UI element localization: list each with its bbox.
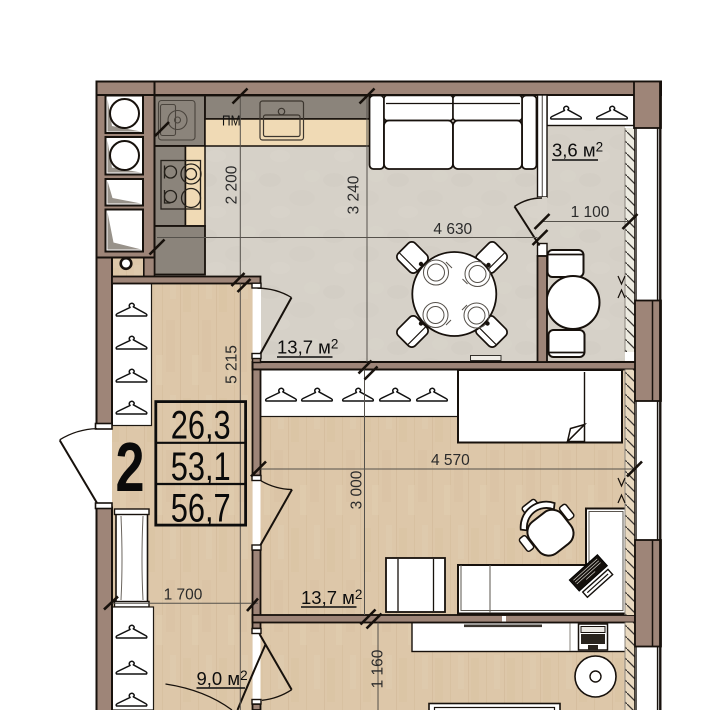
svg-text:3 240: 3 240 xyxy=(346,175,363,214)
svg-text:1 160: 1 160 xyxy=(370,649,387,688)
svg-text:1 100: 1 100 xyxy=(571,204,610,221)
svg-text:4 630: 4 630 xyxy=(433,221,472,238)
svg-text:2: 2 xyxy=(116,428,145,506)
svg-text:3,6 м2: 3,6 м2 xyxy=(552,140,603,161)
svg-text:4 570: 4 570 xyxy=(431,452,470,469)
svg-text:13,7 м2: 13,7 м2 xyxy=(301,587,362,608)
svg-text:ПМ: ПМ xyxy=(222,113,241,130)
svg-text:5 215: 5 215 xyxy=(224,345,241,384)
svg-text:1 700: 1 700 xyxy=(164,587,203,604)
svg-text:56,7: 56,7 xyxy=(171,487,231,531)
svg-text:2 200: 2 200 xyxy=(224,165,241,204)
svg-text:3 000: 3 000 xyxy=(349,470,366,509)
svg-text:13,7 м2: 13,7 м2 xyxy=(277,337,338,358)
svg-text:26,3: 26,3 xyxy=(171,404,231,448)
svg-text:53,1: 53,1 xyxy=(171,445,231,489)
svg-text:9,0 м2: 9,0 м2 xyxy=(197,668,248,689)
